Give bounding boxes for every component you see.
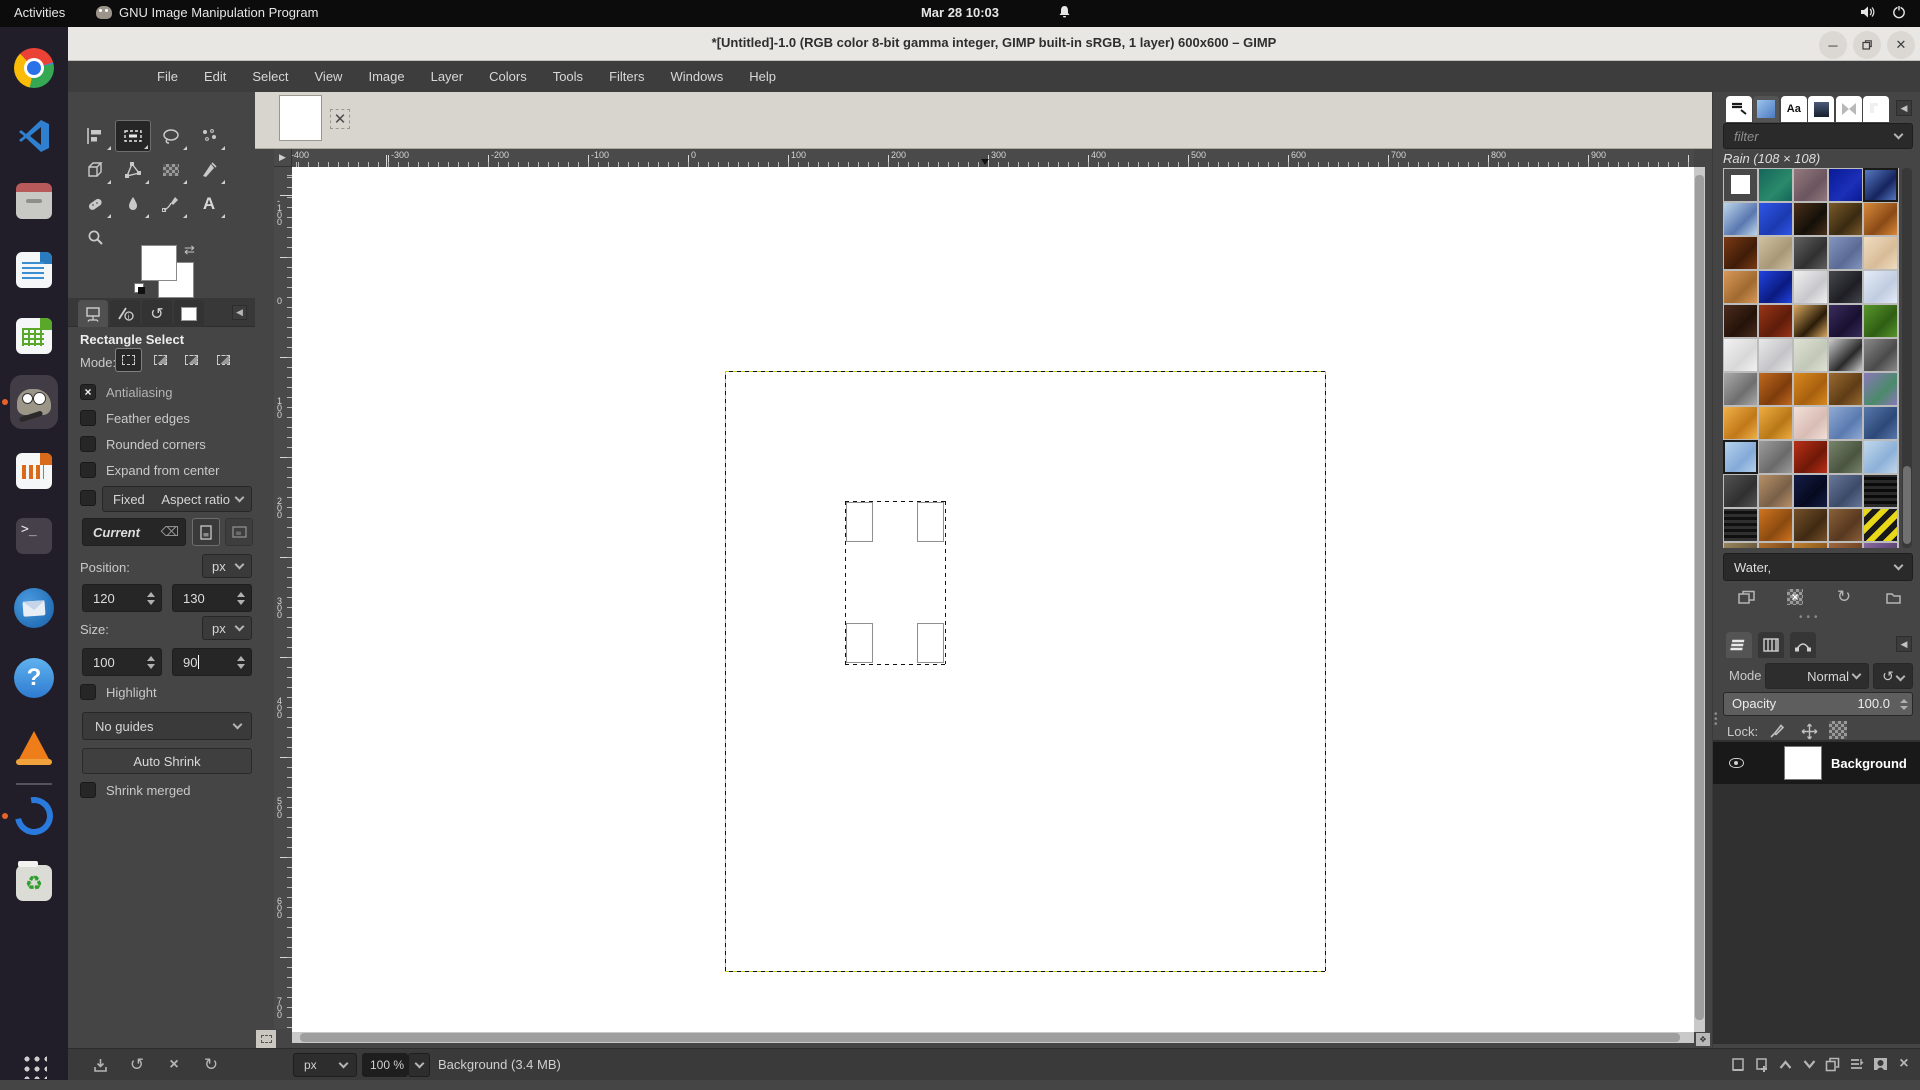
position-y-value: 130 <box>173 591 205 606</box>
pattern-scrollbar[interactable] <box>1902 168 1912 548</box>
horizontal-scrollbar[interactable] <box>292 1032 1694 1043</box>
ruler-label: 7 0 0 <box>277 998 282 1019</box>
zoom-value: 100 % <box>363 1058 404 1072</box>
pattern-swatch[interactable] <box>1829 407 1862 439</box>
position-label: Position: <box>80 560 130 575</box>
left-ruler[interactable]: - 1 0 001 0 02 0 03 0 04 0 05 0 06 0 07 … <box>274 167 292 1029</box>
spinner-arrows[interactable] <box>144 585 158 611</box>
menu-layer[interactable]: Layer <box>420 65 475 88</box>
aspect-current-value: Current <box>83 525 140 540</box>
fixed-aspect-combo[interactable]: Fixed Aspect ratio <box>102 486 252 512</box>
size-width-field[interactable]: 100 <box>82 648 162 676</box>
pattern-swatch[interactable] <box>1759 475 1792 507</box>
menu-edit[interactable]: Edit <box>193 65 237 88</box>
tab-layers[interactable] <box>1726 632 1752 658</box>
pattern-swatch[interactable] <box>1864 203 1897 235</box>
status-message: Background (3.4 MB) <box>438 1057 561 1072</box>
save-tool-preset-button[interactable] <box>88 1053 112 1077</box>
layer-boundary-edge <box>725 371 1325 372</box>
window-title: *[Untitled]-1.0 (RGB color 8-bit gamma i… <box>68 35 1920 50</box>
chevron-down-icon <box>235 493 245 503</box>
menu-image[interactable]: Image <box>357 65 415 88</box>
ruler-label: 1 0 0 <box>277 398 282 419</box>
dock-item-terminal[interactable]: >_ <box>10 512 58 560</box>
opacity-slider[interactable]: Opacity 100.0 <box>1723 692 1913 716</box>
selected-pattern-title: Rain (108 × 108) <box>1723 151 1820 166</box>
ruler-label: 200 <box>891 150 906 160</box>
chevron-down-icon <box>414 1059 424 1069</box>
pattern-swatch[interactable] <box>1794 203 1827 235</box>
layer-boundary-edge <box>725 371 726 971</box>
image-tab-strip: ✕ <box>255 92 1712 149</box>
pattern-swatch[interactable] <box>1864 339 1897 371</box>
pattern-swatch[interactable] <box>1829 271 1862 303</box>
pattern-swatch[interactable] <box>1724 407 1757 439</box>
unit-combo[interactable]: px <box>293 1053 357 1077</box>
spinner-arrows[interactable] <box>234 649 248 675</box>
tool-group-mark <box>145 214 149 218</box>
pattern-swatch[interactable] <box>1829 441 1862 473</box>
replace-icon <box>122 355 135 365</box>
menu-bar: FileEditSelectViewImageLayerColorsToolsF… <box>68 61 1920 92</box>
feather-edges-checkbox[interactable] <box>80 410 96 426</box>
default-colors-icon[interactable] <box>134 283 144 293</box>
filter-placeholder: filter <box>1724 129 1759 144</box>
add-mask-button[interactable] <box>1869 1053 1891 1075</box>
pattern-swatch[interactable] <box>1864 509 1897 541</box>
selection-handle[interactable] <box>917 623 944 663</box>
text-cursor <box>198 655 199 669</box>
pattern-swatch[interactable] <box>1724 305 1757 337</box>
tool-group-mark <box>145 180 149 184</box>
panel-splitter-handle[interactable]: ••• <box>1799 612 1822 623</box>
tool-fuzzy-select[interactable] <box>191 120 227 152</box>
pattern-swatch[interactable] <box>1759 169 1792 201</box>
ruler-label: 900 <box>1591 150 1606 160</box>
layer-mode-value: Normal <box>1807 669 1853 684</box>
pattern-swatch[interactable] <box>1864 543 1897 548</box>
pattern-swatch[interactable] <box>1759 407 1792 439</box>
close-button[interactable]: ✕ <box>1887 31 1915 59</box>
tool-group-mark <box>221 146 225 150</box>
ruler-label: 500 <box>1191 150 1206 160</box>
size-height-value: 90 <box>173 655 197 670</box>
pattern-swatch[interactable] <box>1724 441 1757 473</box>
ruler-label: 600 <box>1291 150 1306 160</box>
menu-help[interactable]: Help <box>738 65 787 88</box>
tool-group-mark <box>183 214 187 218</box>
ruler-label: -100 <box>591 150 609 160</box>
menu-colors[interactable]: Colors <box>478 65 538 88</box>
pattern-swatch[interactable] <box>1864 169 1897 201</box>
pattern-swatch[interactable] <box>1864 237 1897 269</box>
navigation-button[interactable]: ✥ <box>1696 1033 1710 1046</box>
layer-thumbnail[interactable] <box>1784 746 1822 780</box>
dock-splitter-handle[interactable]: • • • <box>1714 712 1718 727</box>
lower-layer-button[interactable] <box>1798 1053 1820 1075</box>
tool-group-mark <box>107 180 111 184</box>
pattern-filter-input[interactable]: filter <box>1723 123 1913 149</box>
ruler-label: 800 <box>1491 150 1506 160</box>
menu-tools[interactable]: Tools <box>542 65 594 88</box>
canvas[interactable] <box>292 167 1694 1032</box>
tab-brushes[interactable] <box>1726 96 1752 122</box>
swap-colors-icon[interactable]: ⇄ <box>184 242 195 258</box>
layer-boundary-edge <box>725 971 1325 972</box>
rounded-corners-label: Rounded corners <box>106 437 206 452</box>
tab-fonts[interactable]: Aa <box>1781 96 1807 122</box>
shrink-merged-checkbox[interactable] <box>80 782 96 798</box>
pattern-swatch[interactable] <box>1794 441 1827 473</box>
ruler-label: -200 <box>491 150 509 160</box>
fixed-checkbox[interactable] <box>80 490 96 506</box>
tool-group-mark <box>107 214 111 218</box>
portrait-orientation-button[interactable] <box>192 518 220 546</box>
pattern-swatch[interactable] <box>1794 407 1827 439</box>
dock-item-vlc[interactable] <box>10 722 58 770</box>
dock-item-chrome[interactable] <box>10 44 58 92</box>
pattern-swatch[interactable] <box>1794 475 1827 507</box>
ruler-label: 5 0 0 <box>277 798 282 819</box>
ruler-label: 700 <box>1391 150 1406 160</box>
pattern-swatch[interactable] <box>1794 271 1827 303</box>
chevron-down-icon <box>235 560 245 570</box>
mode-intersect-button[interactable] <box>210 348 237 372</box>
pattern-swatch[interactable] <box>1864 373 1897 405</box>
merge-down-button[interactable] <box>1846 1053 1868 1075</box>
position-x-field[interactable]: 120 <box>82 584 162 612</box>
landscape-orientation-button[interactable] <box>225 518 253 546</box>
dock: >_?♻ <box>0 27 68 1080</box>
dock-item-calc[interactable] <box>10 312 58 360</box>
delete-layer-button[interactable]: × <box>1893 1053 1915 1075</box>
power-icon[interactable] <box>1892 5 1906 19</box>
pattern-swatch[interactable] <box>1794 373 1827 405</box>
chevron-down-icon <box>1894 561 1904 571</box>
layer-visibility-eye-icon[interactable] <box>1729 758 1744 768</box>
pattern-swatch[interactable] <box>1759 203 1792 235</box>
foreground-color-swatch[interactable] <box>141 245 177 281</box>
pattern-swatch[interactable] <box>1829 203 1862 235</box>
menu-file[interactable]: File <box>146 65 189 88</box>
tab-buffers[interactable] <box>1863 96 1889 122</box>
feather-edges-label: Feather edges <box>106 411 190 426</box>
dock-item-updater[interactable] <box>10 792 58 840</box>
pattern-swatch[interactable] <box>1759 339 1792 371</box>
guides-combo[interactable]: No guides <box>82 712 252 740</box>
highlight-label: Highlight <box>106 685 157 700</box>
position-unit-value: px <box>203 559 226 574</box>
shrink-merged-label: Shrink merged <box>106 783 191 798</box>
lock-alpha-icon[interactable] <box>1829 721 1847 739</box>
chevron-down-icon <box>235 622 245 632</box>
intersect-icon <box>217 355 230 365</box>
size-height-field[interactable]: 90 <box>172 648 252 676</box>
pattern-swatch[interactable] <box>1759 271 1792 303</box>
ruler-label: 400 <box>1091 150 1106 160</box>
pattern-swatch[interactable] <box>1724 373 1757 405</box>
tab-images[interactable] <box>174 300 204 327</box>
chevron-down-icon <box>339 1059 349 1069</box>
spinner-arrows[interactable] <box>1897 693 1911 715</box>
selection-handle[interactable] <box>917 502 944 542</box>
dock-item-thunderbird[interactable] <box>10 584 58 632</box>
auto-shrink-button[interactable]: Auto Shrink <box>82 748 252 774</box>
mode-subtract-button[interactable] <box>178 348 205 372</box>
pattern-swatch[interactable] <box>1829 509 1862 541</box>
new-layer-group-button[interactable] <box>1751 1053 1773 1075</box>
layer-row[interactable]: Background <box>1713 742 1920 784</box>
ruler-corner-button[interactable]: ▶ <box>274 149 292 167</box>
vertical-scrollbar[interactable] <box>1694 167 1705 1032</box>
mode-replace-button[interactable] <box>115 348 142 372</box>
tab-menu-button[interactable]: ◀ <box>232 305 247 320</box>
pattern-swatch[interactable] <box>1864 441 1897 473</box>
pattern-swatch[interactable] <box>1829 339 1862 371</box>
pattern-swatch[interactable] <box>1759 237 1792 269</box>
fixed-label: Fixed <box>103 492 145 507</box>
pattern-swatch[interactable] <box>1759 543 1792 548</box>
lock-pixels-brush-icon[interactable] <box>1765 720 1789 742</box>
toolbox-panel: A ⇄ i↺◀ Rectangle Select Mode: × Antiali… <box>68 92 255 1048</box>
tool-group-mark <box>183 180 187 184</box>
layer-mode-combo[interactable]: Normal <box>1765 663 1869 689</box>
pattern-swatch[interactable] <box>1724 237 1757 269</box>
chevron-down-icon <box>233 720 243 730</box>
expand-from-center-label: Expand from center <box>106 463 219 478</box>
dock-item-gimp[interactable] <box>10 378 58 426</box>
marching-ants-edge <box>845 664 945 665</box>
pattern-swatch[interactable] <box>1724 339 1757 371</box>
dock-item-trash[interactable]: ♻ <box>10 859 58 907</box>
tab-patterns[interactable] <box>1753 96 1779 122</box>
pattern-swatch[interactable] <box>1864 305 1897 337</box>
tool-text[interactable]: A <box>191 188 227 220</box>
tool-zoom[interactable] <box>77 222 113 254</box>
lock-label: Lock: <box>1727 724 1758 739</box>
dock-item-vscode[interactable] <box>10 111 58 159</box>
menu-view[interactable]: View <box>304 65 354 88</box>
pattern-swatch[interactable] <box>1724 203 1757 235</box>
marching-ants-edge <box>945 501 946 664</box>
opacity-value: 100.0 <box>1857 696 1890 711</box>
ruler-label: 0 <box>277 298 282 305</box>
pattern-swatch[interactable] <box>1794 339 1827 371</box>
tab-menu-button[interactable]: ◀ <box>1896 100 1912 116</box>
expand-from-center-checkbox[interactable] <box>80 462 96 478</box>
menu-filters[interactable]: Filters <box>598 65 655 88</box>
tab-tool-options[interactable] <box>78 300 108 327</box>
pattern-swatch[interactable] <box>1864 407 1897 439</box>
chevron-down-icon <box>1852 670 1862 680</box>
opacity-label: Opacity <box>1732 696 1776 711</box>
selection-handle[interactable] <box>846 623 873 663</box>
size-unit-value: px <box>203 621 226 636</box>
antialiasing-label: Antialiasing <box>106 385 173 400</box>
minimize-button[interactable]: ─ <box>1819 31 1847 59</box>
ruler-label: 0 <box>691 150 696 160</box>
clear-icon[interactable]: ⌫ <box>161 524 179 540</box>
menu-select[interactable]: Select <box>241 65 299 88</box>
layer-mode-label: Mode <box>1729 668 1762 683</box>
pattern-swatch[interactable] <box>1829 305 1862 337</box>
dock-item-help[interactable]: ? <box>10 654 58 702</box>
pattern-swatch[interactable] <box>1829 237 1862 269</box>
zoom-combo-button[interactable] <box>408 1053 430 1077</box>
left-dock-tabs: i↺◀ <box>68 298 255 327</box>
guides-value: No guides <box>83 719 154 734</box>
pattern-swatch[interactable] <box>1829 373 1862 405</box>
tab-document-history[interactable] <box>1808 96 1834 122</box>
window-title-bar[interactable]: *[Untitled]-1.0 (RGB color 8-bit gamma i… <box>68 27 1920 61</box>
volume-icon[interactable] <box>1860 5 1876 19</box>
tool-group-mark <box>221 214 225 218</box>
layer-name: Background <box>1831 756 1907 771</box>
tool-free-select[interactable] <box>153 120 189 152</box>
pattern-tag-value: Water, <box>1724 560 1771 575</box>
pattern-swatch[interactable] <box>1724 543 1757 548</box>
pattern-swatch[interactable] <box>1724 271 1757 303</box>
size-width-value: 100 <box>83 655 115 670</box>
ruler-label: 100 <box>791 150 806 160</box>
pattern-swatch[interactable] <box>1759 441 1792 473</box>
pattern-swatch[interactable] <box>1794 169 1827 201</box>
tool-group-mark <box>107 146 111 150</box>
image-tab-close-icon[interactable]: ✕ <box>330 109 350 129</box>
layer-list: Background <box>1713 740 1920 1044</box>
size-unit-combo[interactable]: px <box>202 616 252 640</box>
pattern-swatch[interactable] <box>1794 509 1827 541</box>
pattern-swatch[interactable] <box>1864 271 1897 303</box>
open-pattern-folder-button[interactable] <box>1882 586 1904 608</box>
tool-group-mark <box>183 146 187 150</box>
pattern-swatch[interactable] <box>1724 475 1757 507</box>
canvas-area: ✕ ▶ -400-300-200-10001002003004005006007… <box>255 92 1712 1048</box>
dock-item-apps-grid[interactable] <box>10 1042 58 1090</box>
pattern-swatch[interactable] <box>1864 475 1897 507</box>
lock-position-icon[interactable] <box>1797 720 1821 742</box>
pattern-swatch[interactable] <box>1829 475 1862 507</box>
running-indicator <box>2 813 8 819</box>
right-dock: Aa ◀ filter Rain (108 × 108) Water, ×↻ •… <box>1712 92 1920 1048</box>
refresh-patterns-button[interactable]: ↻ <box>1833 586 1855 608</box>
tool-move[interactable] <box>77 120 113 152</box>
unit-value: px <box>294 1058 317 1072</box>
ruler-label: 2 0 0 <box>277 498 282 519</box>
image-tab-thumbnail[interactable] <box>279 95 322 141</box>
bottom-bar: ↺×↻ px 100 % Background (3.4 MB) × <box>68 1048 1920 1080</box>
pattern-grid <box>1723 168 1899 548</box>
tool-group-mark <box>144 145 148 149</box>
tab-device-status[interactable]: i <box>110 300 140 327</box>
ruler-label: - 1 0 0 <box>277 198 282 226</box>
position-y-field[interactable]: 130 <box>172 584 252 612</box>
mode-switch-button[interactable]: ↺ <box>1873 663 1913 689</box>
dock-item-writer[interactable] <box>10 246 58 294</box>
dock-item-impress[interactable] <box>10 447 58 495</box>
pattern-swatch[interactable] <box>1829 169 1862 201</box>
new-layer-button[interactable] <box>1727 1053 1749 1075</box>
system-top-bar: Activities GNU Image Manipulation Progra… <box>0 0 1920 27</box>
tab-gradients[interactable] <box>1836 96 1862 122</box>
rounded-corners-checkbox[interactable] <box>80 436 96 452</box>
reset-tool-options-button[interactable]: ↻ <box>199 1053 223 1077</box>
pattern-tag-combo[interactable]: Water, <box>1723 553 1913 581</box>
pattern-swatch[interactable] <box>1794 543 1827 548</box>
tab-paths[interactable] <box>1790 632 1816 658</box>
position-unit-combo[interactable]: px <box>202 554 252 578</box>
pattern-swatch[interactable] <box>1724 509 1757 541</box>
add-icon <box>154 355 167 365</box>
quick-mask-toggle[interactable] <box>256 1030 276 1048</box>
pattern-swatch[interactable] <box>1829 543 1862 548</box>
size-label: Size: <box>80 622 109 637</box>
tool-heal[interactable] <box>77 188 113 220</box>
ruler-label: -400 <box>292 150 309 160</box>
maximize-button[interactable] <box>1853 31 1881 59</box>
menu-windows[interactable]: Windows <box>659 65 734 88</box>
ruler-position-marker <box>981 159 989 165</box>
ruler-label: 300 <box>991 150 1006 160</box>
tool-airbrush[interactable] <box>191 154 227 186</box>
pattern-swatch[interactable] <box>1759 509 1792 541</box>
tool-ink[interactable] <box>153 188 189 220</box>
delete-pattern-button[interactable]: × <box>1784 586 1806 608</box>
pattern-swatch[interactable] <box>1759 305 1792 337</box>
dock-divider <box>16 783 52 785</box>
ruler-label: 4 0 0 <box>277 698 282 719</box>
tool-options-title: Rectangle Select <box>80 332 184 347</box>
tool-handle-transform[interactable] <box>115 154 151 186</box>
highlight-checkbox[interactable] <box>80 684 96 700</box>
pattern-swatch[interactable] <box>1724 169 1757 201</box>
clock[interactable]: Mar 28 10:03 <box>0 5 1920 20</box>
tool-group-mark <box>221 180 225 184</box>
tool-unified-transform[interactable] <box>77 154 113 186</box>
bell-icon <box>1058 5 1071 19</box>
chevron-down-icon <box>1894 130 1904 140</box>
restore-tool-preset-button[interactable]: ↺ <box>125 1053 149 1077</box>
tab-channels[interactable] <box>1758 632 1784 658</box>
zoom-value-field[interactable]: 100 % <box>362 1053 408 1077</box>
raise-layer-button[interactable] <box>1774 1053 1796 1075</box>
aspect-current-input[interactable]: Current ⌫ <box>82 518 186 546</box>
tool-blur[interactable] <box>115 188 151 220</box>
aspect-ratio-value: Aspect ratio <box>161 492 236 507</box>
pattern-swatch[interactable] <box>1794 237 1827 269</box>
dock-item-files[interactable] <box>10 177 58 225</box>
ruler-label: 3 0 0 <box>277 598 282 619</box>
subtract-icon <box>185 355 198 365</box>
duplicate-pattern-button[interactable] <box>1735 586 1757 608</box>
selection-handle[interactable] <box>846 502 873 542</box>
spinner-arrows[interactable] <box>234 585 248 611</box>
tool-gradient[interactable] <box>153 154 189 186</box>
spinner-arrows[interactable] <box>144 649 158 675</box>
ruler-label: -300 <box>391 150 409 160</box>
delete-tool-preset-button[interactable]: × <box>162 1053 186 1077</box>
top-ruler[interactable]: -400-300-200-100010020030040050060070080… <box>292 149 1694 167</box>
pattern-swatch[interactable] <box>1794 305 1827 337</box>
tab-menu-button[interactable]: ◀ <box>1896 636 1912 652</box>
antialiasing-checkbox[interactable]: × <box>80 384 96 400</box>
duplicate-layer-button[interactable] <box>1822 1053 1844 1075</box>
layer-boundary-edge <box>1325 371 1326 971</box>
pattern-swatch[interactable] <box>1759 373 1792 405</box>
mode-add-button[interactable] <box>147 348 174 372</box>
tool-rectangle-select[interactable] <box>115 120 151 152</box>
tab-undo-history[interactable]: ↺ <box>142 300 172 327</box>
